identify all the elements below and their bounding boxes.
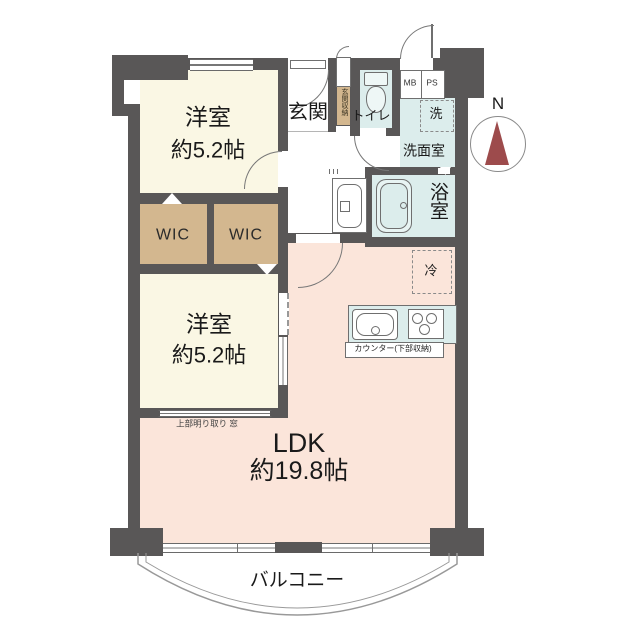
utility-hatch-swing xyxy=(336,46,349,59)
floor-plan: N 洋室 約5.2帖 洋室 約5.2帖 WIC WIC 玄関 玄関収納 トイレ … xyxy=(0,0,640,640)
bedroom2-floor xyxy=(140,274,278,408)
wall-bedroom1-right-upper xyxy=(278,58,288,151)
mirror-tick-3 xyxy=(337,169,338,174)
ps-label: PS xyxy=(426,79,437,88)
toilet-label: トイレ xyxy=(351,109,390,123)
wic1-label: WIC xyxy=(156,228,190,245)
wall-entrance-stub xyxy=(328,70,336,132)
mb-label: MB xyxy=(404,79,417,88)
wall-toilet-right xyxy=(392,58,400,136)
bedroom1-size: 約5.2帖 xyxy=(171,138,246,161)
bedroom2-sliding-door xyxy=(279,293,289,335)
wic2-label: WIC xyxy=(229,228,263,245)
toilet-tank-icon xyxy=(364,72,388,86)
toplight-note: 上部明り取り 窓 xyxy=(176,420,238,429)
bedroom2-label: 洋室 xyxy=(186,312,232,336)
stove-burner-3 xyxy=(419,324,430,335)
entrance-label: 玄関 xyxy=(288,103,328,124)
wall-wic-divider xyxy=(207,204,214,268)
wall-bedroom1-bottom xyxy=(128,193,288,204)
front-door-panel xyxy=(290,60,326,69)
bedroom2-side-window xyxy=(278,337,288,385)
compass-needle xyxy=(485,121,509,165)
ldk-door-opening xyxy=(296,234,340,243)
bathroom-label: 浴室 xyxy=(424,182,451,220)
stove-burner-1 xyxy=(412,313,423,324)
refrigerator-label: 冷 xyxy=(424,264,437,278)
bedroom2-size: 約5.2帖 xyxy=(172,343,247,366)
mirror-tick-2 xyxy=(333,169,334,174)
bedroom1-label: 洋室 xyxy=(185,105,231,129)
mbps-door-opening xyxy=(400,57,433,71)
washroom-label: 洗面室 xyxy=(403,144,445,159)
entrance-step-line xyxy=(288,131,328,132)
utility-hatch-box xyxy=(336,57,351,87)
washer-label: 洗 xyxy=(429,107,442,121)
balcony-label: バルコニー xyxy=(250,571,345,591)
wall-bath-bottom xyxy=(365,237,455,247)
balcony-outline xyxy=(0,550,640,635)
washbasin-handle xyxy=(340,201,350,212)
mirror-tick-1 xyxy=(329,169,330,174)
wall-left-main xyxy=(128,108,140,543)
wall-topright-block xyxy=(440,48,484,98)
toilet-door-swing xyxy=(354,136,389,171)
wall-toilet-left xyxy=(350,58,360,136)
wall-toilet-bottom-l xyxy=(350,128,356,136)
counter-note: カウンター(下部収納) xyxy=(354,345,431,353)
entrance-storage-label: 玄関収納 xyxy=(339,88,349,116)
bathtub-drain xyxy=(400,202,407,209)
bedroom1-top-window xyxy=(190,59,253,71)
kitchen-faucet xyxy=(371,326,380,335)
compass-north-label: N xyxy=(492,95,504,113)
ldk-size: 約19.8帖 xyxy=(250,458,349,484)
bedroom2-transom-window xyxy=(158,410,272,417)
mbps-door-swing xyxy=(400,25,434,59)
stove-burner-2 xyxy=(426,313,437,324)
ldk-label: LDK xyxy=(273,429,326,457)
